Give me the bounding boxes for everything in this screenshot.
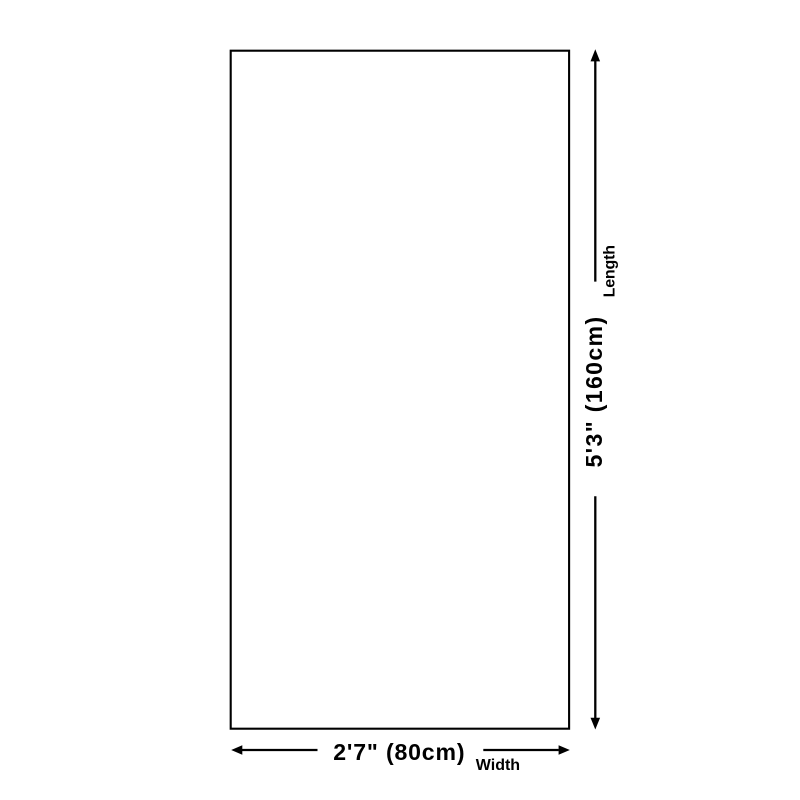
svg-text:Length: Length xyxy=(602,245,619,297)
svg-text:5'3" (160cm): 5'3" (160cm) xyxy=(581,317,607,468)
svg-text:Width: Width xyxy=(476,757,520,774)
svg-text:2'7" (80cm): 2'7" (80cm) xyxy=(333,739,464,765)
